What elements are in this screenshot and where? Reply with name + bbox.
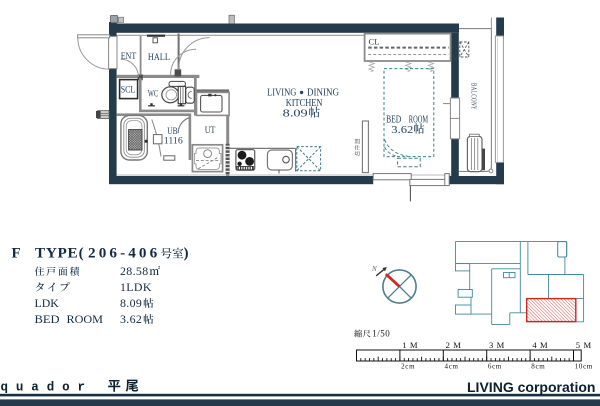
svg-text:3 M: 3 M (489, 340, 505, 350)
svg-text:BED: BED (35, 314, 60, 326)
svg-text:LIVING corporation: LIVING corporation (467, 379, 596, 395)
svg-text:8.09: 8.09 (120, 296, 142, 310)
svg-text:WC: WC (148, 89, 158, 100)
svg-text:2 M: 2 M (446, 340, 462, 350)
svg-text:): ) (184, 245, 189, 262)
svg-text:quador: quador (1, 381, 93, 395)
svg-text:HALL: HALL (148, 52, 170, 63)
svg-text:1/50: 1/50 (372, 329, 390, 339)
svg-text:3.62: 3.62 (391, 125, 413, 136)
svg-text:BALCONY: BALCONY (470, 83, 479, 110)
svg-text:8cm: 8cm (531, 363, 545, 371)
svg-text:8.09: 8.09 (283, 109, 308, 120)
svg-text:6cm: 6cm (488, 363, 502, 371)
svg-text:BED: BED (386, 114, 402, 125)
svg-text:1116: 1116 (164, 136, 183, 147)
svg-text:206-406: 206-406 (88, 245, 160, 262)
svg-text:ROOM: ROOM (67, 314, 104, 326)
svg-text:1 M: 1 M (402, 340, 418, 350)
svg-text:5 M: 5 M (576, 340, 592, 350)
svg-text:4cm: 4cm (445, 363, 459, 371)
svg-text:28.58: 28.58 (120, 264, 149, 278)
svg-text:10cm: 10cm (575, 363, 593, 371)
svg-text:2cm: 2cm (401, 363, 415, 371)
svg-text:CL: CL (369, 36, 380, 46)
svg-text:KITCHEN: KITCHEN (286, 98, 323, 109)
svg-text:1LDK: 1LDK (120, 280, 152, 294)
svg-text:ENT: ENT (121, 51, 137, 62)
svg-text:F: F (12, 246, 21, 262)
svg-text:SCL: SCL (121, 84, 136, 95)
svg-text:(: ( (79, 245, 84, 262)
svg-text:UT: UT (205, 125, 216, 136)
svg-text:TYPE: TYPE (35, 245, 78, 262)
svg-text:N: N (371, 265, 377, 273)
svg-text:4 M: 4 M (532, 340, 548, 350)
svg-text:3.62: 3.62 (120, 312, 142, 326)
svg-text:ROOM: ROOM (409, 114, 428, 125)
svg-text:LDK: LDK (35, 296, 60, 310)
